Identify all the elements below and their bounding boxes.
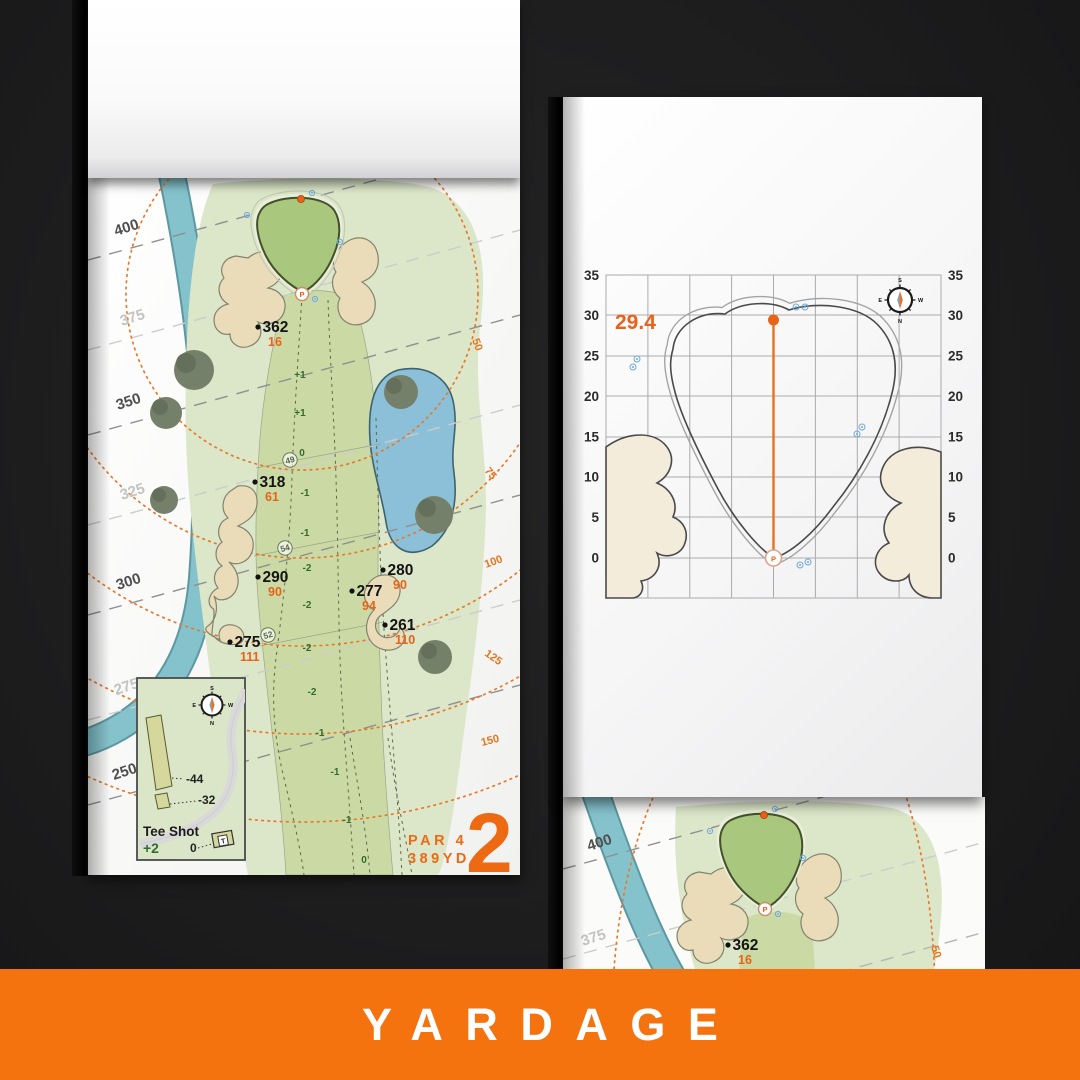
depth-axis-right: 35 30 25 20 15 10 5 0 [948,268,964,566]
svg-text:111: 111 [240,650,260,664]
svg-text:90: 90 [268,585,282,599]
svg-text:-1: -1 [331,767,340,778]
tee-shot-score: +2 [143,840,159,856]
svg-text:N: N [210,721,214,727]
tee-shot-title: Tee Shot [143,824,200,839]
svg-text:E: E [878,298,882,304]
svg-text:15: 15 [584,430,600,445]
front-offset-label: -32 [198,793,216,807]
svg-text:10: 10 [584,470,599,485]
hole-map-page: P +1 +1 0 -1 -1 -2 -2 -2 -2 -1 -1 -1 0 [88,178,520,875]
svg-text:W: W [918,298,924,304]
svg-text:E: E [192,703,196,709]
svg-text:-2: -2 [303,643,312,654]
yardage-banner: YARDAGE [0,969,1080,1080]
svg-text:+1: +1 [294,408,306,419]
svg-text:90: 90 [393,578,407,592]
green-front-pin: P [296,288,309,301]
svg-text:277: 277 [357,583,383,600]
svg-text:30: 30 [584,308,599,323]
svg-text:16: 16 [738,953,752,967]
svg-text:275: 275 [235,634,261,651]
svg-text:362: 362 [263,319,289,336]
svg-text:0: 0 [948,551,956,566]
next-hole-map-page: P 36216 400 375 50 [563,797,985,969]
banner-title: YARDAGE [340,999,741,1051]
svg-text:25: 25 [584,349,600,364]
compass-icon: S N W E [878,278,924,325]
par-label: PAR 4 [408,833,467,849]
green-detail-page: 35 30 25 20 15 10 5 0 35 30 25 20 15 10 … [563,97,982,797]
svg-text:30: 30 [948,308,963,323]
svg-text:P: P [771,554,776,563]
svg-text:10: 10 [948,470,963,485]
svg-text:-1: -1 [301,528,310,539]
svg-text:290: 290 [263,569,289,586]
svg-text:94: 94 [362,599,376,613]
flipped-blank-page [88,0,520,178]
svg-text:W: W [228,703,234,709]
svg-text:261: 261 [390,617,416,634]
green-outline [665,297,902,565]
svg-text:362: 362 [733,937,759,954]
svg-text:-2: -2 [308,687,317,698]
hole-number: 2 [466,796,513,875]
svg-text:-2: -2 [303,600,312,611]
detail-bunker-right [875,447,941,598]
svg-text:P: P [299,290,304,299]
svg-text:5: 5 [948,510,956,525]
svg-text:P: P [762,905,767,914]
svg-text:280: 280 [388,562,414,579]
svg-text:S: S [898,278,902,284]
zero-label: 0 [190,841,197,855]
svg-text:-2: -2 [303,563,312,574]
yardage-label: 389YD [408,851,470,867]
tee-marker-icon: T [212,830,234,847]
svg-text:N: N [898,319,902,325]
green-depth-value: 29.4 [615,311,656,334]
svg-text:0: 0 [299,448,305,459]
svg-text:35: 35 [948,268,964,283]
svg-text:-1: -1 [343,815,352,826]
svg-text:S: S [210,686,214,692]
tee-shot-inset: -44 -32 Tee Shot +2 0 T S [137,678,246,860]
svg-text:61: 61 [265,490,279,504]
svg-text:25: 25 [948,349,964,364]
svg-text:+1: +1 [294,370,306,381]
svg-text:20: 20 [584,389,599,404]
back-pin-dot [297,195,304,202]
svg-text:-1: -1 [316,728,325,739]
yardage-book-scene: P +1 +1 0 -1 -1 -2 -2 -2 -2 -1 -1 -1 0 [0,0,1080,1080]
svg-text:35: 35 [584,268,600,283]
depth-axis-left: 35 30 25 20 15 10 5 0 [584,268,600,566]
hole-map-svg: P +1 +1 0 -1 -1 -2 -2 -2 -2 -1 -1 -1 0 [88,178,520,875]
next-hole-map-svg: P 36216 400 375 50 [563,797,985,969]
back-pin-dot [760,811,767,818]
svg-text:318: 318 [260,474,286,491]
back-offset-label: -44 [186,772,204,786]
green-detail-svg: 35 30 25 20 15 10 5 0 35 30 25 20 15 10 … [563,97,982,797]
svg-text:15: 15 [948,430,964,445]
svg-text:0: 0 [591,551,599,566]
svg-text:0: 0 [361,855,367,866]
svg-text:16: 16 [268,335,282,349]
svg-text:5: 5 [591,510,599,525]
svg-text:110: 110 [395,633,415,647]
svg-text:20: 20 [948,389,963,404]
svg-text:-1: -1 [301,488,310,499]
